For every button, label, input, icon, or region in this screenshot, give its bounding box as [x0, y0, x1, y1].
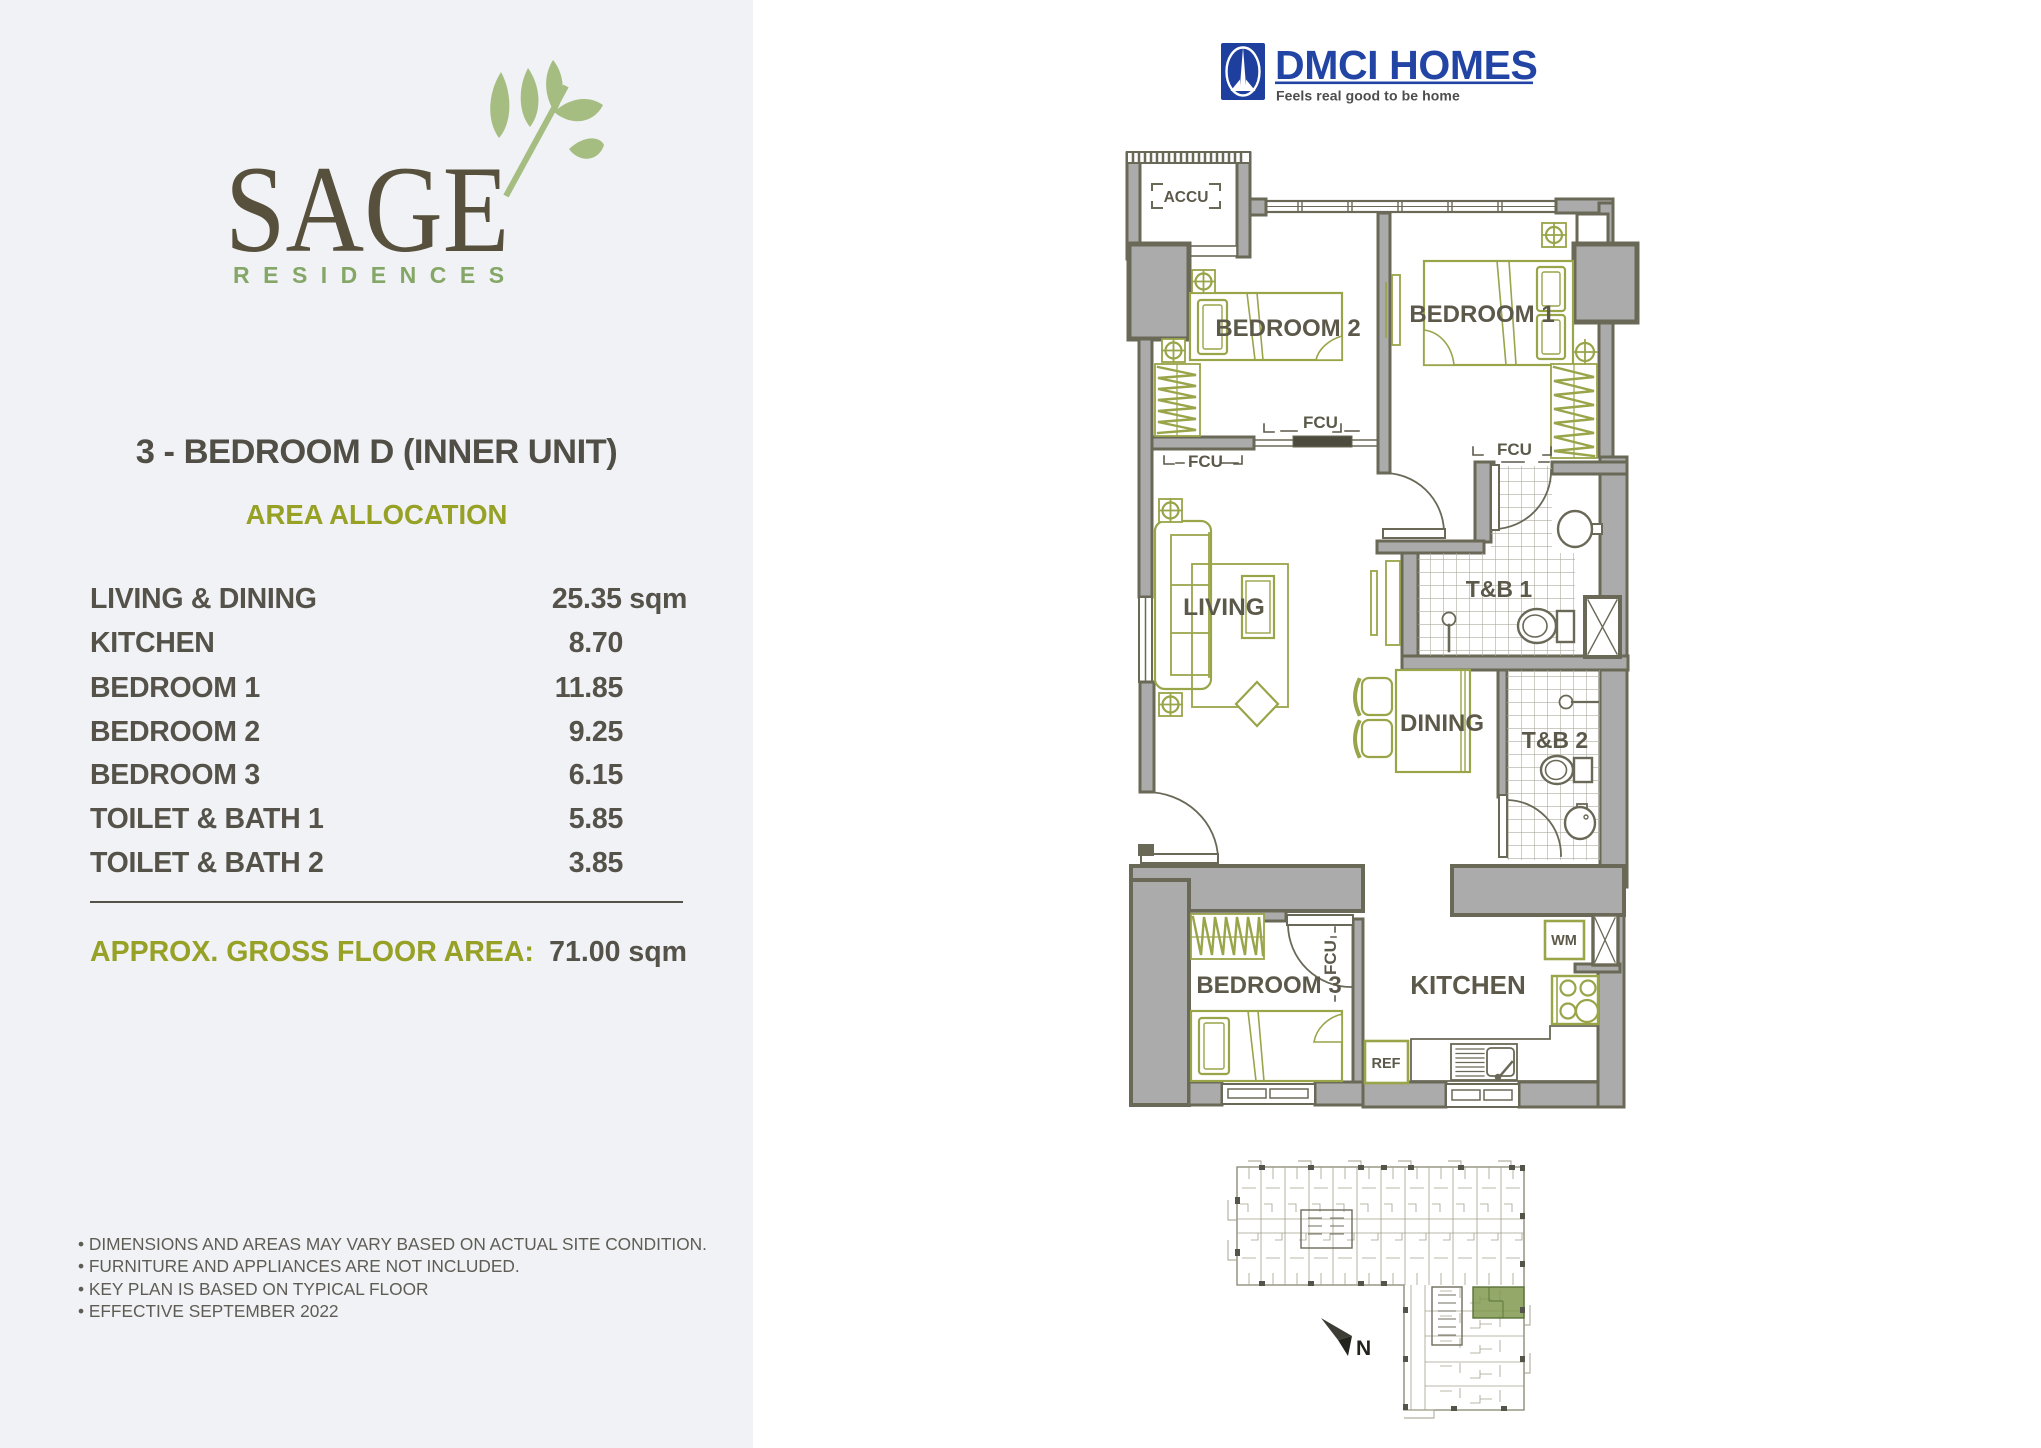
svg-text:BEDROOM 3: BEDROOM 3: [1196, 972, 1341, 999]
svg-text:WM: WM: [1551, 933, 1577, 949]
svg-text:FCU: FCU: [1303, 413, 1338, 432]
svg-text:N: N: [1356, 1337, 1371, 1360]
svg-text:LIVING: LIVING: [1183, 594, 1265, 621]
svg-text:T&B 1: T&B 1: [1466, 576, 1533, 602]
svg-text:KITCHEN: KITCHEN: [1410, 970, 1526, 1000]
svg-text:DINING: DINING: [1400, 710, 1484, 737]
svg-text:FCU: FCU: [1497, 440, 1532, 459]
svg-text:T&B 2: T&B 2: [1522, 727, 1588, 753]
svg-text:BEDROOM 2: BEDROOM 2: [1215, 315, 1360, 342]
svg-text:FCU: FCU: [1188, 452, 1223, 471]
svg-text:BEDROOM 1: BEDROOM 1: [1409, 301, 1554, 328]
svg-text:REF: REF: [1372, 1056, 1401, 1072]
svg-text:FCU: FCU: [1321, 940, 1340, 975]
svg-text:ACCU: ACCU: [1164, 189, 1209, 206]
